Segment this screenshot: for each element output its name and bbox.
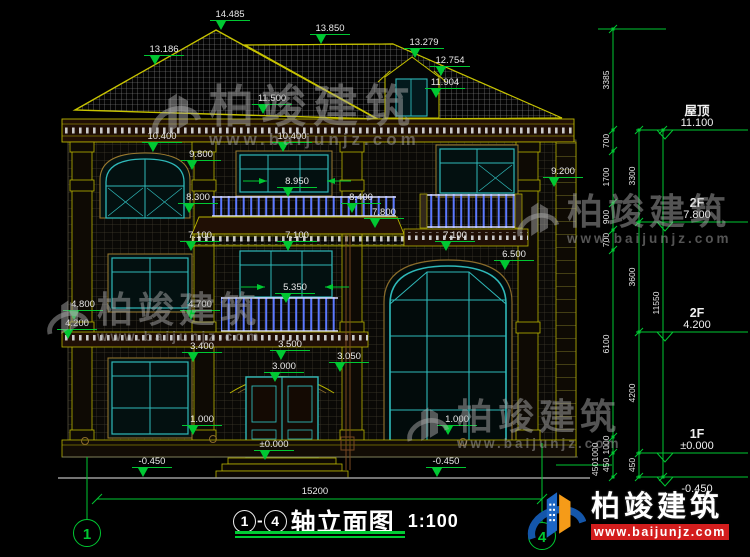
svg-text:3.000: 3.000	[272, 361, 296, 372]
dimension-chains: 3385700170090070061001000450330036004200…	[601, 25, 667, 481]
drawing-title: 1 - 4 轴立面图 1:100	[233, 503, 459, 539]
svg-text:3300: 3300	[627, 166, 637, 185]
cad-canvas: 1 4 15200 14.48513.85013.18613.27912.754…	[0, 0, 750, 557]
dim-chain: 11550	[651, 126, 667, 481]
svg-text:700: 700	[601, 233, 611, 247]
axis-bubble-start: 1	[233, 510, 256, 533]
band-4200	[62, 332, 368, 347]
title-text: 轴立面图	[291, 503, 395, 539]
dormer-window	[396, 79, 427, 116]
floor-level: 屋顶11.100	[636, 103, 748, 139]
svg-text:11550: 11550	[651, 291, 661, 314]
svg-text:3.050: 3.050	[337, 351, 361, 362]
axis-bubble-end: 4	[264, 510, 287, 533]
svg-text:3385: 3385	[601, 70, 611, 89]
svg-text:13.186: 13.186	[149, 44, 178, 55]
svg-text:700: 700	[601, 134, 611, 148]
extra-dim: 450	[590, 462, 600, 476]
svg-text:8.400: 8.400	[349, 192, 373, 203]
svg-text:4.700: 4.700	[188, 299, 212, 310]
svg-text:7.800: 7.800	[372, 207, 396, 218]
svg-text:7.100: 7.100	[285, 230, 309, 241]
svg-text:7.100: 7.100	[188, 230, 212, 241]
floor-level: 1F±0.000	[636, 427, 748, 462]
svg-text:8.300: 8.300	[186, 192, 210, 203]
elevation-mark: -0.450	[426, 456, 466, 477]
svg-text:2F: 2F	[690, 196, 705, 210]
svg-text:4.200: 4.200	[65, 318, 89, 329]
title-underline	[235, 536, 405, 538]
svg-text:450: 450	[627, 458, 637, 472]
svg-text:11.500: 11.500	[258, 93, 286, 104]
balcony-2f-railing	[221, 297, 338, 333]
step	[222, 464, 342, 471]
svg-text:4.200: 4.200	[683, 319, 711, 331]
svg-text:8.950: 8.950	[285, 176, 309, 187]
elevation-mark: 14.485	[210, 9, 250, 30]
svg-text:5.350: 5.350	[283, 282, 307, 293]
svg-text:9.200: 9.200	[551, 166, 575, 177]
axis-number-left: 1	[83, 526, 91, 543]
svg-text:1F: 1F	[690, 427, 705, 441]
svg-text:7.800: 7.800	[683, 209, 711, 221]
svg-text:4200: 4200	[627, 383, 637, 402]
svg-text:900: 900	[601, 210, 611, 224]
dim-chain: 3385700170090070061001000450	[601, 25, 617, 481]
svg-text:12.754: 12.754	[435, 55, 464, 66]
svg-text:9.800: 9.800	[189, 149, 213, 160]
axis-range-dash: -	[257, 511, 263, 531]
extra-dim: 1000	[590, 442, 600, 461]
window-3f-left-arched	[100, 153, 190, 218]
title-scale: 1:100	[408, 511, 459, 532]
svg-text:13.279: 13.279	[409, 37, 438, 48]
window-2f-left	[108, 254, 192, 312]
elevation-mark: 13.850	[310, 23, 350, 44]
svg-text:13.850: 13.850	[315, 23, 344, 34]
dim-chain: 330036004200450	[627, 126, 643, 481]
svg-text:7.100: 7.100	[443, 230, 467, 241]
brand-logo: 柏竣建筑 www.baijunjz.com	[524, 482, 729, 550]
svg-text:1000: 1000	[601, 435, 611, 454]
svg-text:2F: 2F	[690, 306, 705, 320]
floor-level: 2F7.800	[636, 196, 748, 231]
title-underline	[235, 531, 405, 534]
window-3f-right	[436, 145, 518, 197]
svg-text:11.100: 11.100	[681, 117, 714, 129]
step	[216, 471, 348, 478]
svg-text:屋顶: 屋顶	[684, 103, 710, 118]
svg-text:-0.450: -0.450	[139, 456, 166, 467]
brand-url: www.baijunjz.com	[591, 524, 729, 540]
corner-quoins	[556, 142, 576, 457]
step	[228, 458, 336, 464]
brand-name: 柏竣建筑	[591, 492, 729, 522]
svg-text:10.400: 10.400	[277, 131, 306, 142]
svg-text:10.400: 10.400	[147, 131, 176, 142]
svg-text:3.400: 3.400	[190, 341, 214, 352]
svg-text:6.500: 6.500	[502, 249, 526, 260]
overall-dim-text: 15200	[302, 486, 328, 497]
elevation-mark: -0.450	[132, 456, 172, 477]
svg-text:1.000: 1.000	[445, 414, 469, 425]
svg-text:4.800: 4.800	[71, 299, 95, 310]
extra-dims: 1000450	[590, 442, 600, 476]
brand-logo-icon	[524, 482, 586, 550]
svg-text:1.000: 1.000	[190, 414, 214, 425]
svg-text:-0.450: -0.450	[433, 456, 460, 467]
svg-text:3.500: 3.500	[278, 339, 302, 350]
svg-text:6100: 6100	[601, 334, 611, 353]
svg-text:1700: 1700	[601, 167, 611, 186]
elevation-drawing: 1 4 15200 14.48513.85013.18613.27912.754…	[0, 0, 750, 557]
svg-text:14.485: 14.485	[215, 9, 244, 20]
eave-cornice	[62, 119, 574, 142]
window-1f-left	[108, 358, 192, 438]
svg-text:450: 450	[601, 458, 611, 472]
svg-text:±0.000: ±0.000	[680, 440, 714, 452]
svg-text:3600: 3600	[627, 267, 637, 286]
svg-text:±0.000: ±0.000	[260, 439, 289, 450]
svg-text:11.904: 11.904	[431, 77, 459, 88]
balcony-3f-right-railing	[420, 194, 522, 228]
